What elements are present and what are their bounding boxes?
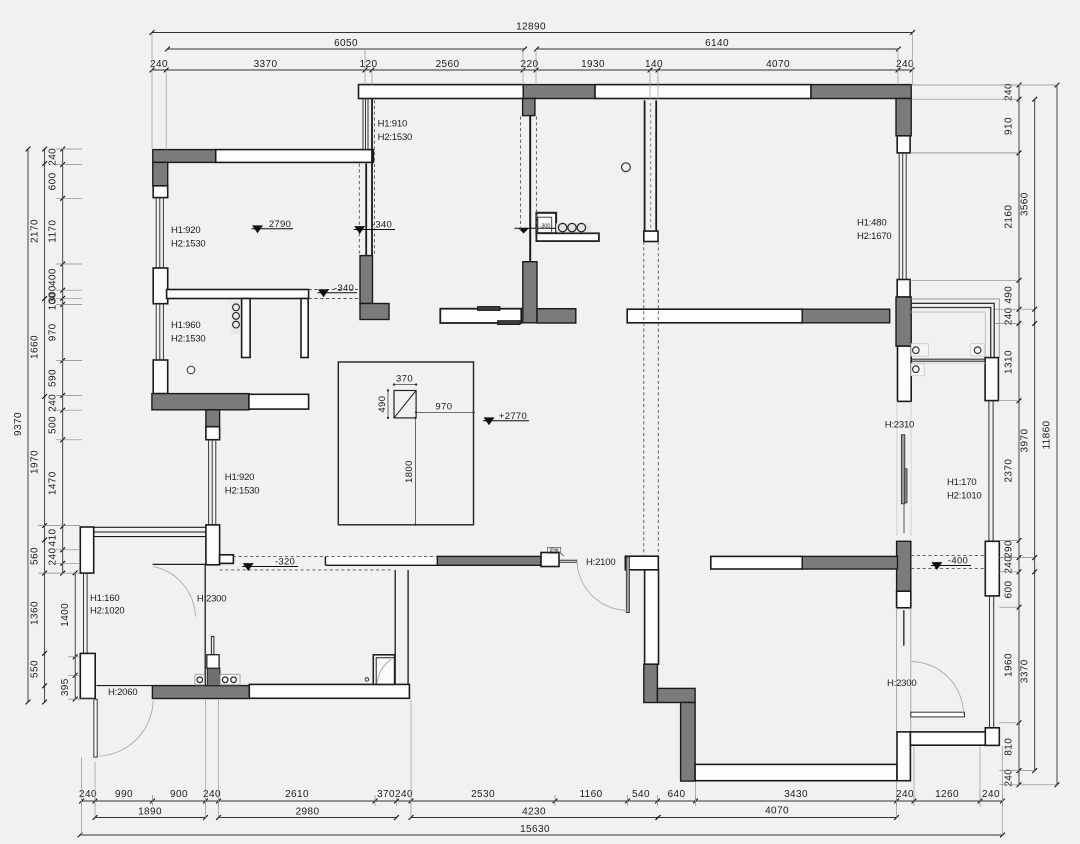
- svg-text:-400: -400: [948, 556, 968, 567]
- svg-text:240: 240: [1004, 83, 1015, 101]
- svg-text:4070: 4070: [766, 59, 790, 70]
- svg-text:1660: 1660: [30, 335, 41, 359]
- svg-text:640: 640: [668, 789, 686, 800]
- svg-text:140: 140: [645, 59, 663, 70]
- svg-text:H1:160: H1:160: [90, 593, 119, 604]
- svg-text:H:2300: H:2300: [197, 594, 226, 605]
- svg-text:3430: 3430: [784, 789, 808, 800]
- svg-text:500: 500: [48, 416, 59, 434]
- svg-text:-340: -340: [334, 283, 354, 294]
- svg-text:600: 600: [48, 172, 59, 190]
- svg-text:11860: 11860: [1042, 420, 1053, 449]
- svg-text:+2770: +2770: [499, 411, 527, 422]
- svg-text:1400: 1400: [60, 603, 71, 627]
- svg-text:1930: 1930: [581, 59, 605, 70]
- svg-text:560: 560: [30, 547, 41, 565]
- svg-text:-340: -340: [372, 220, 392, 231]
- svg-text:2790: 2790: [269, 219, 291, 230]
- svg-text:12890: 12890: [516, 21, 546, 32]
- svg-text:990: 990: [115, 789, 133, 800]
- svg-text:1260: 1260: [935, 789, 959, 800]
- svg-text:3370: 3370: [254, 59, 278, 70]
- svg-text:可拆: 可拆: [549, 547, 559, 554]
- svg-text:1960: 1960: [1004, 653, 1015, 677]
- svg-text:1890: 1890: [138, 806, 162, 817]
- svg-text:-320: -320: [275, 557, 295, 568]
- svg-text:H1:480: H1:480: [857, 218, 886, 229]
- svg-text:3370: 3370: [1020, 659, 1031, 683]
- svg-text:240: 240: [48, 548, 59, 566]
- svg-text:240: 240: [48, 148, 59, 166]
- svg-text:240: 240: [150, 59, 168, 70]
- svg-text:1470: 1470: [48, 471, 59, 495]
- svg-text:1310: 1310: [1004, 350, 1015, 374]
- svg-text:410: 410: [48, 529, 59, 547]
- svg-text:H2:1020: H2:1020: [90, 606, 125, 617]
- svg-text:4070: 4070: [765, 806, 789, 817]
- svg-text:1170: 1170: [48, 220, 59, 243]
- svg-text:240: 240: [1004, 307, 1015, 325]
- svg-text:6050: 6050: [334, 38, 358, 49]
- svg-text:900: 900: [170, 789, 188, 800]
- svg-text:9370: 9370: [13, 412, 24, 436]
- svg-text:240: 240: [1004, 556, 1015, 574]
- svg-text:810: 810: [1004, 738, 1015, 756]
- svg-text:370: 370: [396, 374, 413, 385]
- svg-text:910: 910: [1004, 117, 1015, 135]
- svg-text:970: 970: [435, 401, 452, 412]
- svg-text:H:2300: H:2300: [887, 678, 916, 689]
- svg-text:H:2060: H:2060: [108, 687, 137, 698]
- svg-text:395: 395: [60, 678, 71, 696]
- svg-text:H2:1530: H2:1530: [171, 334, 206, 345]
- svg-text:240: 240: [982, 789, 1000, 800]
- svg-text:2170: 2170: [30, 219, 41, 243]
- svg-text:H1:920: H1:920: [225, 472, 254, 483]
- svg-text:2980: 2980: [296, 806, 320, 817]
- svg-text:1160: 1160: [579, 789, 602, 800]
- svg-text:H1:170: H1:170: [947, 477, 976, 488]
- svg-text:550: 550: [30, 660, 41, 678]
- svg-text:2610: 2610: [285, 789, 309, 800]
- svg-text:490: 490: [377, 396, 388, 413]
- svg-text:H2:1530: H2:1530: [378, 132, 413, 143]
- svg-text:240: 240: [395, 789, 413, 800]
- svg-text:240: 240: [896, 789, 914, 800]
- svg-text:490: 490: [1004, 286, 1015, 304]
- svg-text:240: 240: [48, 394, 59, 412]
- svg-text:1360: 1360: [30, 601, 41, 625]
- svg-text:290: 290: [1004, 540, 1015, 558]
- svg-text:H2:1010: H2:1010: [947, 491, 982, 502]
- svg-text:400: 400: [48, 268, 59, 286]
- svg-text:2370: 2370: [1004, 459, 1015, 483]
- svg-text:H2:1530: H2:1530: [171, 239, 206, 250]
- svg-text:540: 540: [632, 789, 650, 800]
- svg-text:3970: 3970: [1020, 429, 1031, 453]
- svg-text:1800: 1800: [404, 460, 415, 483]
- svg-text:2530: 2530: [471, 789, 495, 800]
- svg-text:H1:910: H1:910: [378, 119, 407, 130]
- svg-text:2560: 2560: [436, 59, 460, 70]
- svg-text:100: 100: [48, 292, 59, 310]
- svg-text:240: 240: [1004, 769, 1015, 787]
- svg-text:4230: 4230: [522, 806, 546, 817]
- svg-text:1970: 1970: [30, 450, 41, 474]
- svg-text:H1:960: H1:960: [171, 320, 200, 331]
- svg-text:H2:1530: H2:1530: [225, 486, 260, 497]
- svg-text:H1:920: H1:920: [171, 225, 200, 236]
- svg-text:2160: 2160: [1004, 205, 1015, 229]
- svg-text:15630: 15630: [520, 824, 550, 835]
- svg-text:590: 590: [48, 369, 59, 387]
- svg-text:600: 600: [1004, 581, 1015, 599]
- svg-text:120: 120: [360, 59, 378, 70]
- svg-text:H:2310: H:2310: [885, 420, 914, 431]
- svg-text:240: 240: [896, 59, 914, 70]
- svg-text:H2:1670: H2:1670: [857, 231, 892, 242]
- svg-text:970: 970: [48, 323, 59, 341]
- svg-text:H:2100: H:2100: [586, 557, 615, 568]
- svg-text:6140: 6140: [705, 38, 729, 49]
- svg-text:370: 370: [377, 789, 395, 800]
- svg-text:3560: 3560: [1020, 192, 1031, 216]
